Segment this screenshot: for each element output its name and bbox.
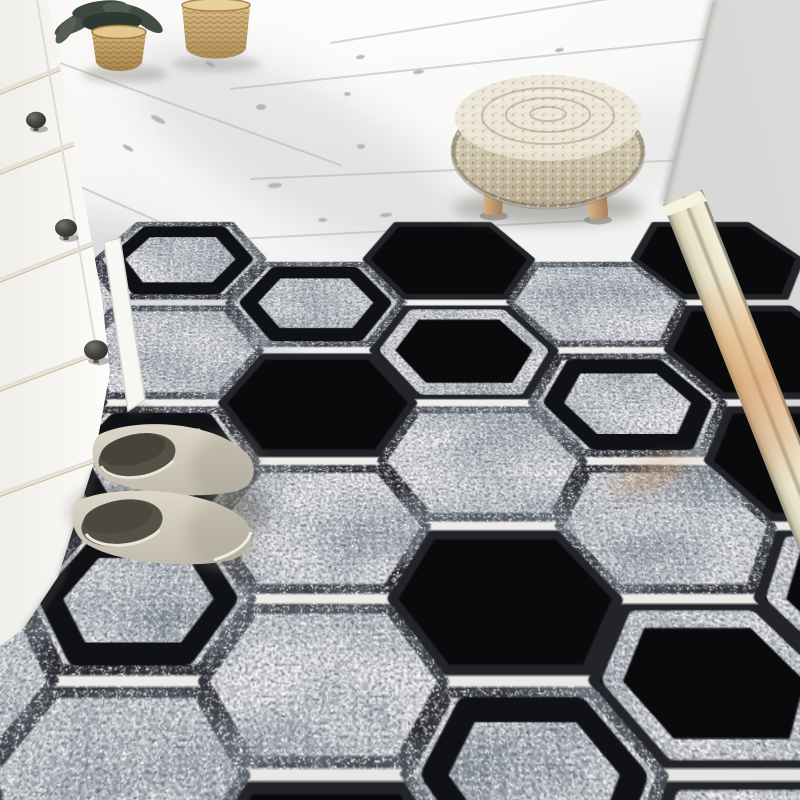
entryway-photo bbox=[0, 0, 800, 800]
plant-basket bbox=[51, 0, 167, 83]
basket-rim bbox=[92, 26, 146, 39]
basket-rim bbox=[182, 0, 250, 11]
knitted-pouf bbox=[451, 75, 645, 225]
second-basket bbox=[172, 0, 260, 72]
props-layer bbox=[0, 0, 800, 800]
slippers bbox=[70, 424, 270, 570]
slipper-front bbox=[73, 491, 258, 570]
